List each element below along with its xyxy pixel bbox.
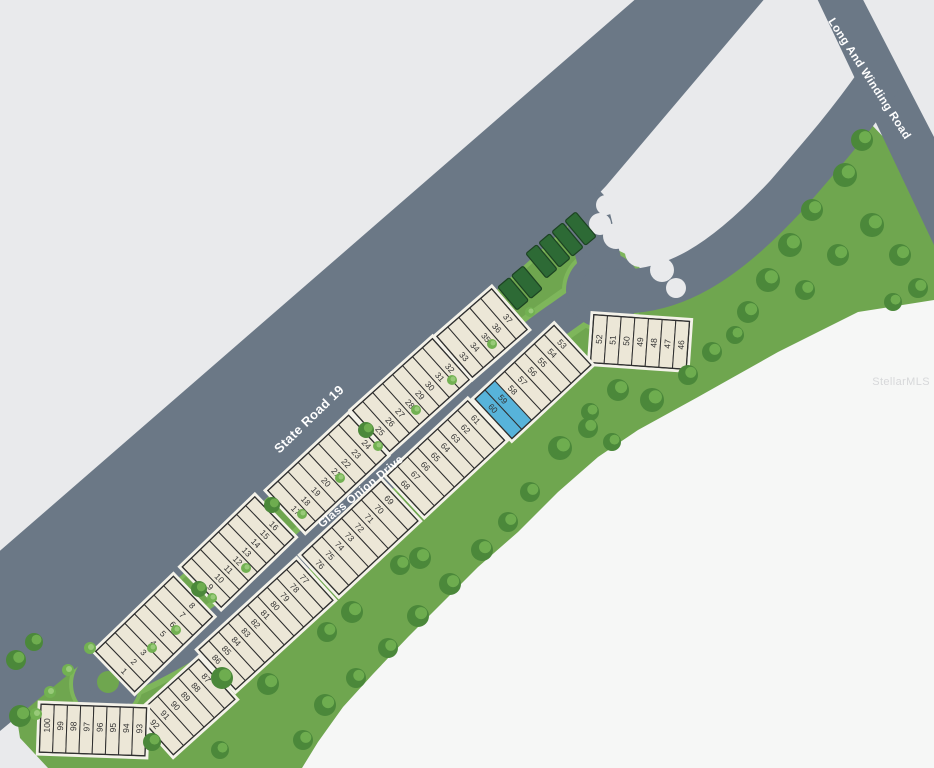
tree [314, 694, 336, 716]
lot-number-text: 52 [594, 334, 605, 344]
tree-highlight [265, 675, 277, 687]
tree [678, 365, 698, 385]
tree [884, 293, 902, 311]
tree [264, 497, 280, 513]
lot-number-93: 93 [134, 723, 144, 733]
lot-number-95: 95 [108, 723, 118, 733]
tree-highlight [891, 295, 901, 305]
bush [84, 642, 96, 654]
site-plan-map: 1234567891011121314151617181920212223242… [0, 0, 934, 768]
tree [257, 673, 279, 695]
tree [778, 233, 802, 257]
lot-number-text: 95 [108, 723, 118, 733]
median-island [596, 195, 616, 215]
tree [851, 129, 873, 151]
bush [525, 307, 535, 317]
median-island [666, 278, 686, 298]
tree [191, 581, 207, 597]
tree-highlight [787, 235, 800, 248]
bush-highlight [451, 377, 456, 382]
tree-highlight [32, 635, 42, 645]
tree [795, 280, 815, 300]
tree [409, 547, 431, 569]
tree [341, 601, 363, 623]
tree-highlight [364, 424, 373, 433]
tree-highlight [745, 303, 757, 315]
tree [607, 379, 629, 401]
tree [9, 705, 31, 727]
tree [346, 668, 366, 688]
lot-number-99: 99 [55, 721, 65, 731]
tree-highlight [915, 280, 926, 291]
bush [171, 625, 181, 635]
tree-highlight [897, 246, 909, 258]
tree-highlight [479, 541, 491, 553]
tree-highlight [385, 640, 396, 651]
tree-highlight [322, 696, 334, 708]
tree [520, 482, 540, 502]
tree [498, 512, 518, 532]
bush-highlight [151, 645, 156, 650]
lot-number-100: 100 [42, 718, 52, 733]
lot-number-98: 98 [68, 721, 78, 731]
tree-highlight [765, 270, 778, 283]
lot-number-text: 48 [648, 338, 659, 348]
tree [833, 163, 857, 187]
bush-highlight [34, 710, 40, 716]
watermark: StellarMLS [872, 376, 930, 388]
lot-number-97: 97 [81, 722, 91, 732]
lot-number-text: 51 [607, 335, 618, 345]
bush [44, 686, 56, 698]
bush-highlight [339, 475, 344, 480]
bush-highlight [211, 595, 216, 600]
tree [737, 301, 759, 323]
bush-highlight [491, 341, 496, 346]
lot-number-text: 93 [134, 723, 144, 733]
tree-highlight [809, 201, 821, 213]
tree-highlight [709, 344, 720, 355]
bush-highlight [245, 565, 250, 570]
tree [548, 436, 572, 460]
lot-number-text: 97 [81, 722, 91, 732]
tree [726, 326, 744, 344]
tree-highlight [417, 549, 429, 561]
tree-highlight [505, 514, 516, 525]
tree [25, 633, 43, 651]
tree-highlight [527, 484, 538, 495]
tree-highlight [17, 707, 29, 719]
tree-highlight [349, 603, 361, 615]
tree-highlight [615, 381, 627, 393]
bush-highlight [415, 407, 420, 412]
tree-highlight [802, 282, 813, 293]
tree-highlight [324, 624, 335, 635]
bush [447, 375, 457, 385]
lots-93-100: 10099989796959493 [37, 702, 148, 758]
tree-highlight [415, 607, 427, 619]
median-island [603, 223, 629, 249]
lot-number-52: 52 [594, 334, 605, 344]
bush [373, 441, 383, 451]
tree [801, 199, 823, 221]
lot-number-text: 100 [42, 718, 52, 733]
tree-highlight [557, 438, 570, 451]
lot-number-50: 50 [621, 336, 632, 346]
tree-highlight [842, 165, 855, 178]
bush [241, 563, 251, 573]
bush-highlight [48, 688, 54, 694]
bush [335, 473, 345, 483]
tree [889, 244, 911, 266]
bush-highlight [66, 666, 72, 672]
median-island [625, 237, 655, 267]
bush [487, 339, 497, 349]
tree-highlight [219, 669, 231, 681]
bush-highlight [529, 309, 534, 314]
lot-number-text: 47 [662, 339, 673, 349]
lot-number-49: 49 [635, 337, 646, 347]
bush [297, 509, 307, 519]
tree-highlight [218, 743, 228, 753]
tree [378, 638, 398, 658]
tree-highlight [649, 390, 662, 403]
tree [439, 573, 461, 595]
tree-highlight [300, 732, 311, 743]
lot-number-46: 46 [676, 340, 687, 350]
tree [827, 244, 849, 266]
lot-number-text: 96 [95, 722, 105, 732]
tree [211, 741, 229, 759]
tree-highlight [13, 652, 24, 663]
tree [702, 342, 722, 362]
tree [143, 733, 161, 751]
lot-number-text: 94 [121, 723, 131, 733]
bush [207, 593, 217, 603]
tree-highlight [588, 405, 598, 415]
bush [30, 708, 42, 720]
bush [62, 664, 74, 676]
tree [578, 418, 598, 438]
tree [471, 539, 493, 561]
tree-highlight [270, 499, 279, 508]
tree [6, 650, 26, 670]
bush [147, 643, 157, 653]
tree-highlight [447, 575, 459, 587]
tree [603, 433, 621, 451]
lot-number-text: 49 [635, 337, 646, 347]
tree [908, 278, 928, 298]
tree-highlight [685, 367, 696, 378]
lot-number-text: 98 [68, 721, 78, 731]
tree [407, 605, 429, 627]
lot-number-51: 51 [607, 335, 618, 345]
tree-highlight [835, 246, 847, 258]
tree-highlight [733, 328, 743, 338]
site-plan: 1234567891011121314151617181920212223242… [0, 0, 934, 768]
lot-number-48: 48 [648, 338, 659, 348]
tree-highlight [859, 131, 871, 143]
lot-number-94: 94 [121, 723, 131, 733]
bush-highlight [88, 644, 94, 650]
tree [860, 213, 884, 237]
bush-highlight [377, 443, 382, 448]
tree-highlight [353, 670, 364, 681]
tree-highlight [869, 215, 882, 228]
tree-highlight [610, 435, 620, 445]
tree [293, 730, 313, 750]
tree [756, 268, 780, 292]
tree-highlight [585, 420, 596, 431]
tree-highlight [197, 583, 206, 592]
lots-46-52: 52515049484746 [588, 313, 691, 372]
lot-number-47: 47 [662, 339, 673, 349]
tree [358, 422, 374, 438]
bush [411, 405, 421, 415]
lot-number-96: 96 [95, 722, 105, 732]
lot-number-text: 46 [676, 340, 687, 350]
lot-number-text: 50 [621, 336, 632, 346]
tree [390, 555, 410, 575]
bush-highlight [301, 511, 306, 516]
median-island [650, 258, 674, 282]
tree-highlight [397, 557, 408, 568]
tree [317, 622, 337, 642]
tree-highlight [150, 735, 160, 745]
lot-number-text: 99 [55, 721, 65, 731]
tree [640, 388, 664, 412]
bush-highlight [175, 627, 180, 632]
tree [211, 667, 233, 689]
